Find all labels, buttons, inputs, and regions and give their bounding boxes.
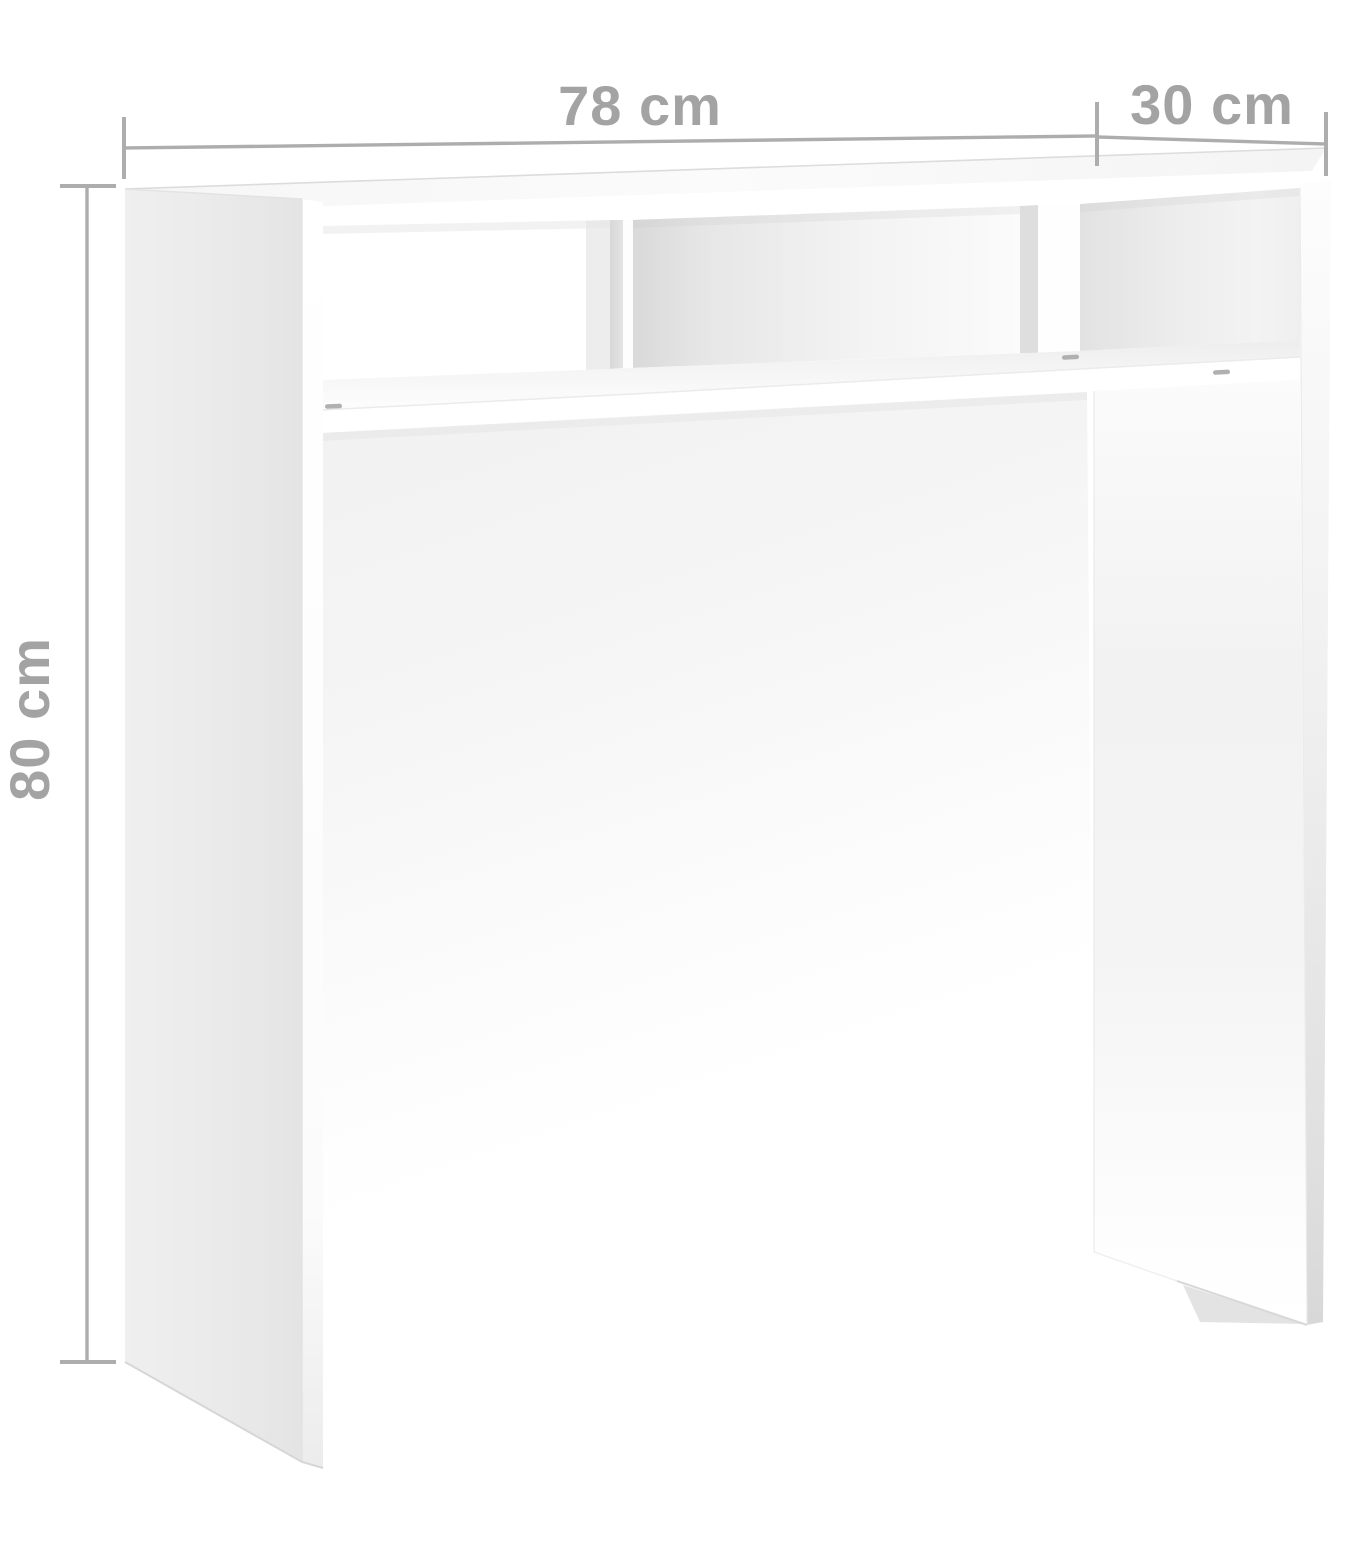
compartment-opening-1	[322, 220, 610, 380]
compartment-opening-1-right-shadow	[586, 220, 610, 370]
middle-wall-front-edge	[1038, 204, 1080, 353]
height-dimension: 80 cm	[0, 186, 114, 1362]
product-dimension-image: 78 cm 30 cm 80 cm	[0, 0, 1360, 1555]
width-dimension-label: 78 cm	[558, 74, 722, 137]
middle-wall-side-face	[1020, 205, 1038, 353]
screw-icon	[1213, 370, 1230, 375]
height-dimension-label: 80 cm	[0, 637, 61, 801]
compartment-opening-2	[633, 206, 1020, 368]
left-panel-outer-face	[125, 189, 302, 1462]
left-panel-front-edge-strip	[302, 199, 323, 1468]
depth-dimension-label: 30 cm	[1130, 73, 1294, 136]
compartment-opening-3	[1080, 188, 1300, 351]
console-table-diagram: 78 cm 30 cm 80 cm	[0, 0, 1360, 1555]
screw-icon	[1062, 355, 1079, 360]
screw-icon	[325, 404, 342, 409]
divider-side-face	[610, 220, 623, 369]
apron-front-face	[322, 392, 1094, 1445]
divider-front-edge	[623, 220, 633, 368]
apron-panel	[322, 392, 1094, 1445]
width-dimension-line	[124, 136, 1097, 148]
depth-dimension-line	[1097, 137, 1326, 144]
left-side-panel	[125, 189, 323, 1468]
right-leg-front-face	[1094, 380, 1307, 1325]
